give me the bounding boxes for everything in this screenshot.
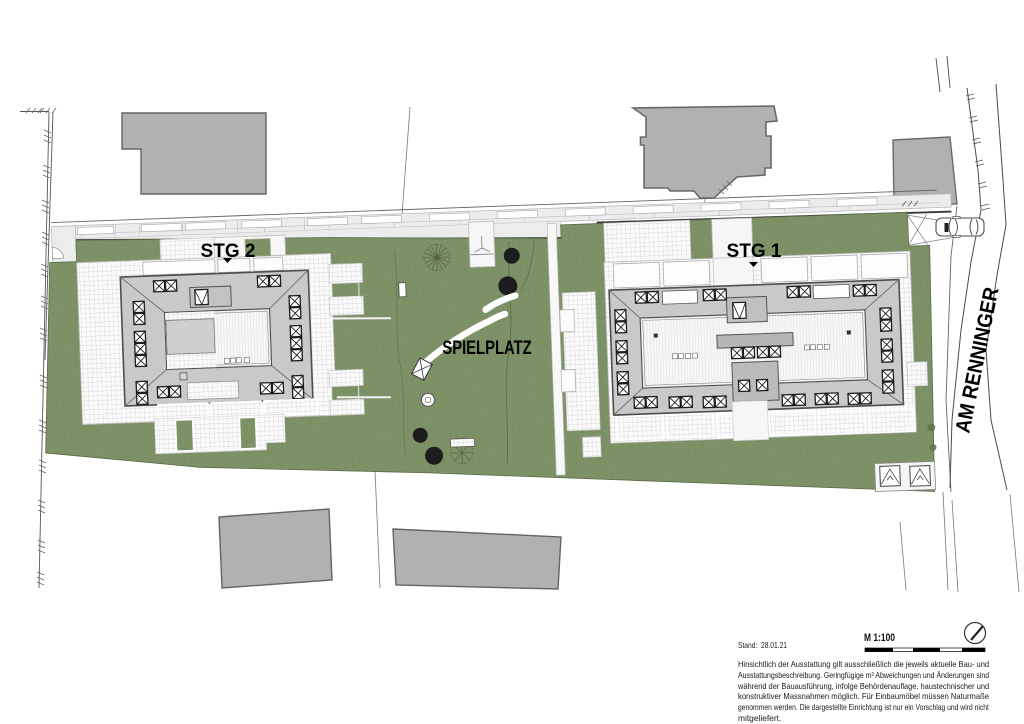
svg-text:STG 1: STG 1 [727,241,782,262]
svg-text:M 1:100: M 1:100 [864,632,895,644]
svg-text:Stand: 28.01.21: Stand: 28.01.21 [738,640,787,650]
svg-text:SPIELPLATZ: SPIELPLATZ [442,337,531,358]
